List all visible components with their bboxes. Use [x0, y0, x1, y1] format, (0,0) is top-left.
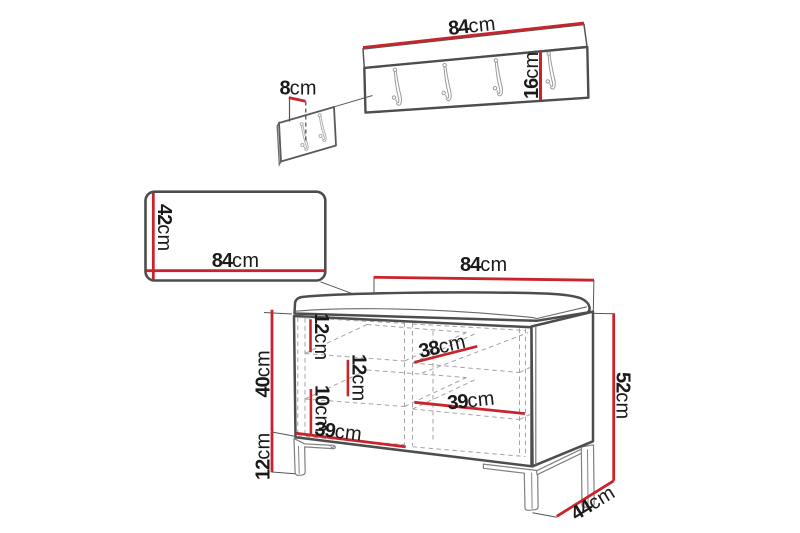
svg-text:16cm: 16cm	[521, 51, 543, 99]
svg-text:84cm: 84cm	[460, 254, 508, 276]
svg-text:8cm: 8cm	[280, 78, 317, 100]
svg-text:12cm: 12cm	[348, 354, 370, 402]
svg-text:42cm: 42cm	[153, 204, 175, 252]
svg-text:12cm: 12cm	[310, 313, 332, 361]
svg-text:12cm: 12cm	[253, 432, 275, 480]
svg-text:40cm: 40cm	[253, 350, 275, 398]
svg-text:52cm: 52cm	[612, 372, 634, 420]
svg-text:84cm: 84cm	[212, 250, 260, 272]
